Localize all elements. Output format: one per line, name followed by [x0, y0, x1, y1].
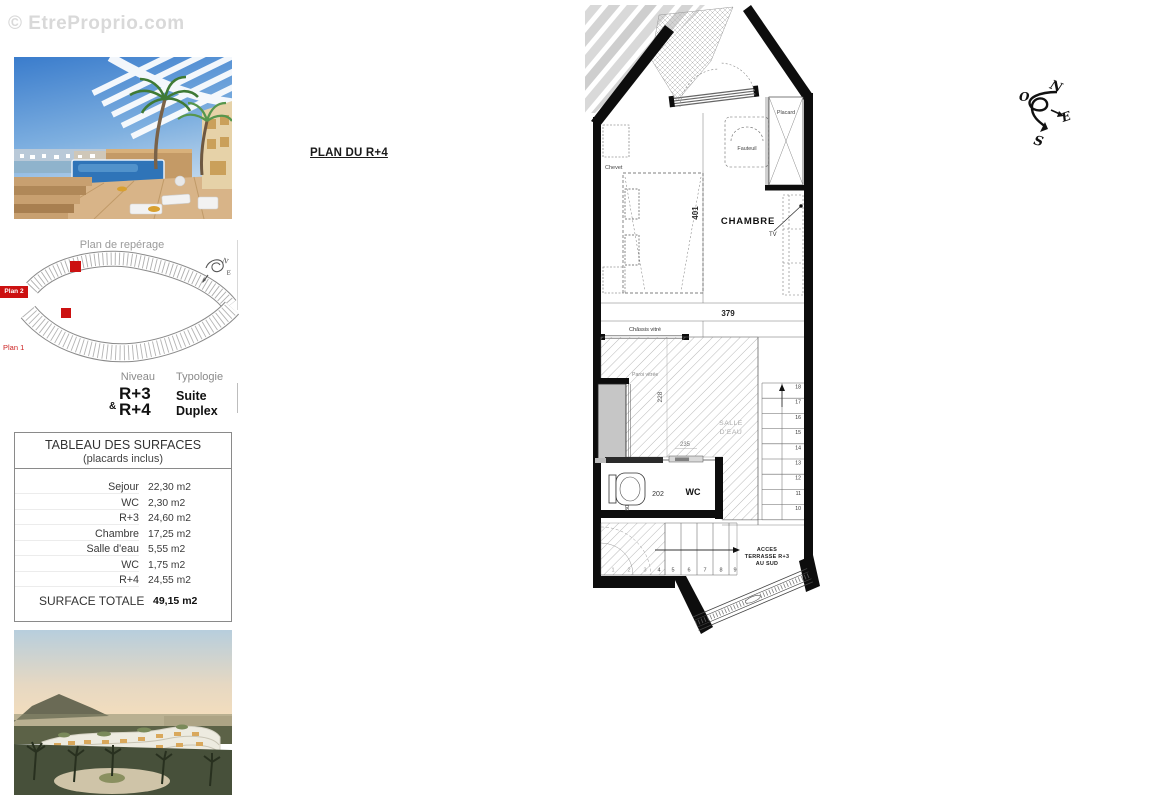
chevet-label: Chevet [605, 165, 623, 171]
chassis-vitre-label: Châssis vitré [629, 327, 661, 333]
bed [623, 173, 703, 293]
surface-total-value: 49,15 m2 [153, 595, 197, 607]
svg-text:E: E [225, 269, 232, 277]
tv-label: TV [769, 232, 777, 238]
dimension-202: 202 [652, 491, 664, 498]
svg-text:O: O [1019, 90, 1030, 104]
page-title: PLAN DU R+4 [310, 147, 388, 159]
niveau-amp: & [109, 401, 116, 412]
stairs-upper-numbers: 181716151413121110 [795, 385, 801, 513]
surface-row: WC1,75 m2 [15, 558, 231, 574]
acces-terrasse-label: ACCES [757, 547, 777, 553]
stair-number: 9 [733, 568, 736, 574]
stair-number: 15 [795, 430, 801, 436]
stair-number: 11 [796, 491, 801, 497]
floor-plan: 379 401 CHAMBRE TV Chevet Fauteuil Placa… [585, 5, 825, 650]
terrace-railing [693, 569, 813, 631]
unit-marker-lower [61, 308, 71, 318]
niveau-header: Niveau [85, 371, 155, 383]
room-label-chambre: CHAMBRE [721, 216, 775, 227]
stair-number: 3 [643, 568, 646, 574]
surface-rows: Sejour22,30 m2WC2,30 m2R+324,60 m2Chambr… [15, 480, 231, 589]
typologie-header: Typologie [176, 371, 223, 383]
stair-number: 14 [795, 445, 801, 451]
surface-row: R+424,55 m2 [15, 573, 231, 589]
watermark: © EtreProprio.com [8, 13, 185, 35]
niveau-value-line2: R+4 [119, 402, 151, 417]
niveau-value-line1: R+3 [119, 386, 151, 401]
dimension-80: 80 [625, 505, 631, 511]
dimension-401: 401 [691, 206, 700, 220]
divider [15, 468, 231, 469]
reperage-map: N E [0, 250, 240, 368]
surface-table: TABLEAU DES SURFACES (placards inclus) S… [14, 432, 232, 622]
surface-row-value: 22,30 m2 [148, 482, 191, 493]
surface-total-label: SURFACE TOTALE [39, 594, 144, 608]
svg-text:Fauteuil: Fauteuil [737, 146, 756, 152]
svg-text:AU SUD: AU SUD [756, 561, 778, 567]
surface-row-label: R+3 [15, 512, 139, 525]
surface-row: Chambre17,25 m2 [15, 527, 231, 543]
stair-number: 4 [657, 568, 660, 574]
svg-text:TERRASSE R+3: TERRASSE R+3 [745, 554, 790, 560]
terrace-photo [14, 57, 232, 219]
surface-row-label: WC [15, 559, 139, 572]
stair-number: 16 [795, 415, 801, 421]
surface-table-subtitle: (placards inclus) [15, 453, 231, 465]
surface-row-label: Chambre [15, 528, 139, 541]
surface-table-title: TABLEAU DES SURFACES [15, 438, 231, 452]
svg-text:E: E [1059, 108, 1074, 125]
surface-row-value: 5,55 m2 [148, 544, 185, 555]
stair-number: 10 [795, 506, 801, 512]
stair-number: 8 [719, 568, 722, 574]
stair-number: 7 [703, 568, 706, 574]
building-photo [14, 630, 232, 795]
paroi-vitree-label: Paroi vitrée [632, 372, 658, 378]
room-label-salle-eau: SALLE [719, 420, 743, 427]
placard: Placard [765, 97, 805, 191]
fauteuil: Fauteuil [725, 117, 769, 167]
dimension-228: 228 [657, 391, 664, 402]
surface-row: WC2,30 m2 [15, 496, 231, 512]
surface-row: R+324,60 m2 [15, 511, 231, 527]
surface-row-value: 2,30 m2 [148, 498, 185, 509]
svg-text:S: S [1032, 133, 1045, 150]
chevet-box [603, 267, 625, 293]
stair-number: 5 [671, 568, 674, 574]
stair-number: 18 [795, 385, 801, 391]
svg-text:D'EAU: D'EAU [720, 429, 743, 436]
surface-row-label: R+4 [15, 574, 139, 587]
dimension-379: 379 [721, 309, 735, 318]
divider [237, 240, 238, 310]
stairs-down-arrow [733, 547, 740, 553]
toilet [609, 473, 645, 505]
chevet-box [603, 125, 629, 157]
stair-number: 2 [627, 568, 630, 574]
stairs-up-arrow [779, 384, 785, 391]
surface-row: Salle d'eau5,55 m2 [15, 542, 231, 558]
stair-number: 6 [687, 568, 690, 574]
plan1-label: Plan 1 [3, 343, 24, 352]
surface-row-value: 1,75 m2 [148, 560, 185, 571]
svg-text:N: N [220, 256, 229, 266]
stair-number: 17 [795, 400, 801, 406]
typologie-value-line1: Suite [176, 389, 207, 403]
plan2-badge: Plan 2 [0, 286, 28, 298]
stair-number: 13 [795, 461, 801, 467]
typologie-value-line2: Duplex [176, 404, 218, 418]
shower [598, 384, 626, 459]
stair-number: 1 [611, 568, 614, 574]
divider [237, 383, 238, 413]
unit-marker-upper [70, 261, 81, 272]
svg-text:N: N [1047, 77, 1066, 96]
terrace-entry-patch [651, 7, 733, 101]
surface-row-label: Salle d'eau [15, 543, 139, 556]
surface-row: Sejour22,30 m2 [15, 480, 231, 496]
compass-icon: N O E S [1005, 70, 1085, 150]
stairs-lower-numbers: 123456789 [611, 568, 736, 574]
surface-row-value: 24,60 m2 [148, 513, 191, 524]
vanity [595, 456, 717, 463]
wardrobe [783, 195, 803, 295]
surface-row-value: 24,55 m2 [148, 575, 191, 586]
surface-row-value: 17,25 m2 [148, 529, 191, 540]
stair-number: 12 [795, 476, 801, 482]
surface-row-label: Sejour [15, 481, 139, 494]
room-label-wc: WC [686, 487, 701, 497]
svg-text:Placard: Placard [777, 110, 795, 116]
dimension-235: 235 [680, 442, 691, 448]
surface-row-label: WC [15, 497, 139, 510]
